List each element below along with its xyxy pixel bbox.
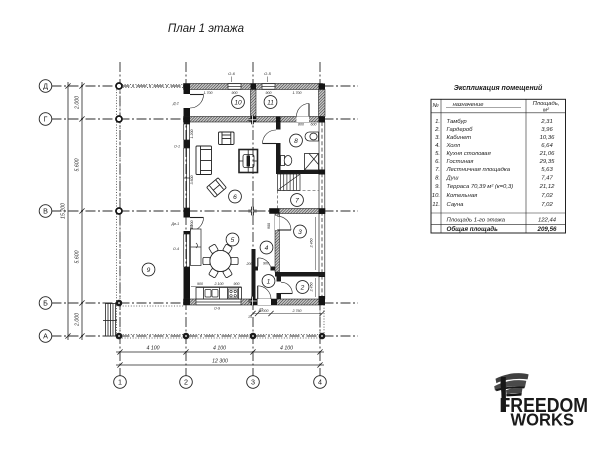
svg-text:6: 6	[233, 194, 237, 201]
svg-text:Д: Д	[43, 82, 48, 91]
svg-text:А: А	[43, 332, 48, 341]
svg-text:WORKS: WORKS	[511, 410, 575, 430]
svg-text:О-1: О-1	[174, 145, 180, 149]
svg-text:7: 7	[295, 198, 299, 205]
svg-text:900: 900	[234, 282, 240, 286]
svg-text:10,36: 10,36	[540, 135, 555, 141]
svg-text:3.: 3.	[435, 135, 440, 141]
svg-text:122,44: 122,44	[538, 218, 557, 224]
svg-text:Экспликация помещений: Экспликация помещений	[454, 84, 543, 92]
svg-text:Холл: Холл	[446, 143, 461, 149]
svg-text:5: 5	[231, 237, 235, 244]
svg-text:Г: Г	[44, 115, 48, 124]
svg-text:900: 900	[232, 91, 238, 95]
svg-text:8.: 8.	[435, 175, 440, 181]
svg-text:5.600: 5.600	[75, 250, 81, 263]
svg-text:7,47: 7,47	[541, 175, 553, 181]
svg-text:Площадь 1-го этажа: Площадь 1-го этажа	[447, 218, 506, 224]
svg-text:2: 2	[300, 285, 305, 292]
svg-text:6.: 6.	[435, 159, 440, 165]
svg-text:21,06: 21,06	[539, 151, 555, 157]
svg-text:209,56: 209,56	[537, 226, 557, 233]
svg-text:2,31: 2,31	[540, 119, 552, 125]
svg-text:12 300: 12 300	[212, 359, 228, 365]
svg-text:4 100: 4 100	[147, 346, 160, 352]
svg-text:2: 2	[184, 378, 188, 387]
svg-text:3: 3	[251, 378, 255, 387]
svg-text:1.000: 1.000	[260, 309, 269, 313]
svg-text:4: 4	[265, 245, 269, 252]
svg-text:9: 9	[147, 267, 151, 274]
svg-text:4 100: 4 100	[280, 346, 293, 352]
svg-text:15: 15	[248, 315, 252, 319]
svg-text:5.: 5.	[435, 151, 440, 157]
svg-text:3,96: 3,96	[541, 127, 553, 133]
svg-text:1.200: 1.200	[190, 221, 194, 230]
svg-text:Тамбур: Тамбур	[447, 119, 468, 125]
svg-text:900: 900	[266, 91, 272, 95]
svg-text:Гардероб: Гардероб	[447, 127, 474, 133]
svg-text:Кухня столовая: Кухня столовая	[447, 151, 492, 157]
svg-text:29,35: 29,35	[539, 159, 555, 165]
svg-text:600: 600	[311, 123, 317, 127]
svg-text:2.460: 2.460	[310, 239, 314, 249]
svg-text:7,02: 7,02	[541, 202, 553, 208]
svg-text:900: 900	[263, 262, 269, 266]
svg-text:Общая площадь: Общая площадь	[447, 226, 499, 233]
svg-text:8: 8	[294, 138, 298, 145]
svg-text:4 100: 4 100	[213, 346, 226, 352]
svg-text:4.: 4.	[435, 143, 440, 149]
svg-text:15.200: 15.200	[61, 203, 67, 219]
svg-text:1: 1	[267, 279, 271, 286]
svg-text:2.000: 2.000	[75, 313, 81, 327]
svg-text:Гостиная: Гостиная	[447, 159, 475, 165]
svg-text:10.: 10.	[432, 193, 440, 199]
svg-text:800: 800	[298, 123, 304, 127]
svg-text:№: №	[433, 103, 439, 109]
svg-text:1.200: 1.200	[190, 130, 194, 139]
svg-text:Душ: Душ	[446, 175, 459, 181]
svg-text:Котельная: Котельная	[447, 193, 479, 199]
svg-text:11.: 11.	[432, 202, 440, 208]
svg-text:1.700: 1.700	[204, 91, 213, 95]
svg-text:900: 900	[267, 223, 271, 229]
svg-text:назначение: назначение	[453, 102, 485, 108]
svg-text:1.700: 1.700	[293, 91, 302, 95]
svg-text:3.600: 3.600	[190, 176, 194, 185]
svg-text:2.000: 2.000	[75, 96, 81, 110]
svg-text:Сауна: Сауна	[447, 202, 465, 208]
svg-text:Площадь,: Площадь,	[533, 101, 560, 107]
svg-text:5.600: 5.600	[75, 158, 81, 171]
svg-text:2.: 2.	[434, 127, 440, 133]
svg-text:6,64: 6,64	[541, 143, 553, 149]
svg-text:10: 10	[234, 100, 242, 107]
svg-text:О-6: О-6	[228, 71, 235, 76]
svg-text:Лестничная площадка: Лестничная площадка	[446, 167, 511, 173]
svg-text:Б: Б	[43, 299, 48, 308]
svg-text:7.: 7.	[435, 167, 440, 173]
svg-text:В: В	[43, 207, 48, 216]
svg-text:200: 200	[246, 262, 253, 266]
svg-text:Кабинет: Кабинет	[447, 135, 472, 141]
svg-text:Терраса 70,39 м² (к=0,3): Терраса 70,39 м² (к=0,3)	[447, 184, 514, 190]
svg-text:О-5: О-5	[264, 71, 271, 76]
svg-text:Д-2: Д-2	[172, 102, 179, 106]
svg-text:5,63: 5,63	[541, 167, 553, 173]
svg-text:21,12: 21,12	[539, 184, 555, 190]
svg-text:11: 11	[267, 100, 274, 107]
svg-text:План 1 этажа: План 1 этажа	[168, 23, 244, 35]
svg-text:9.: 9.	[435, 184, 440, 190]
svg-text:7,02: 7,02	[541, 193, 553, 199]
svg-text:1.: 1.	[435, 119, 440, 125]
svg-text:4: 4	[318, 378, 322, 387]
svg-text:О-4: О-4	[173, 247, 179, 251]
svg-text:О-9: О-9	[214, 307, 220, 311]
svg-text:900: 900	[197, 282, 203, 286]
svg-text:2.760: 2.760	[292, 309, 302, 313]
svg-text:2.450: 2.450	[310, 283, 314, 293]
svg-text:Дв-1: Дв-1	[171, 222, 180, 226]
svg-text:1: 1	[118, 378, 122, 387]
svg-text:3: 3	[298, 229, 302, 236]
svg-text:2.100: 2.100	[214, 282, 224, 286]
